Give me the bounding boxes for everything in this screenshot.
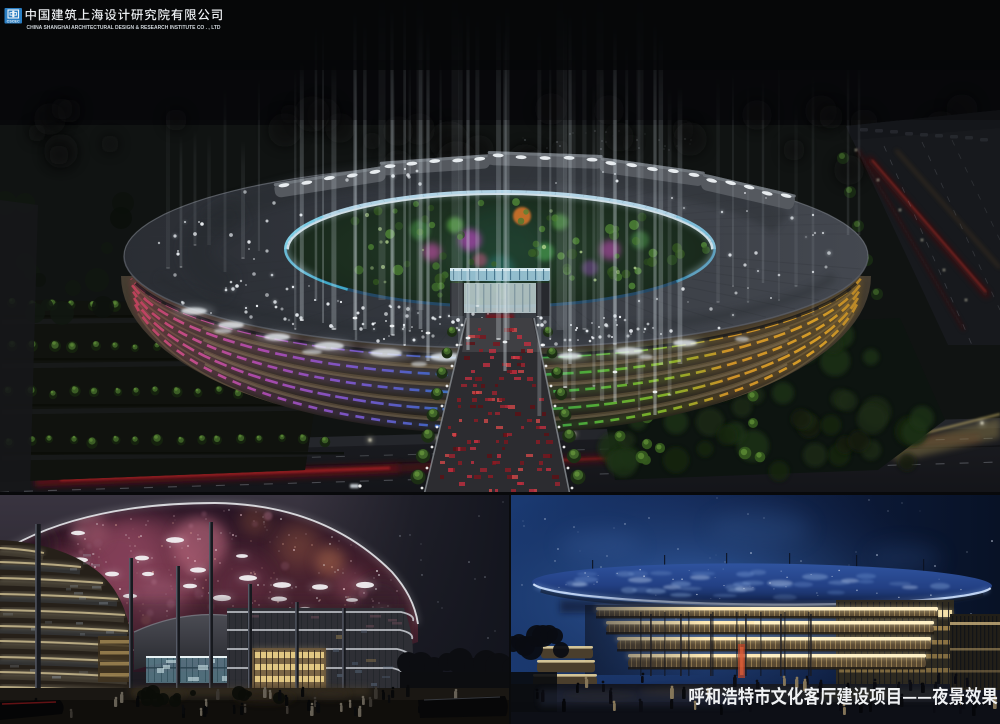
svg-text:CHINA SHANGHAI ARCHITECTURAL D: CHINA SHANGHAI ARCHITECTURAL DESIGN & RE… — [27, 25, 221, 31]
svg-text:CSCEC: CSCEC — [7, 19, 20, 23]
